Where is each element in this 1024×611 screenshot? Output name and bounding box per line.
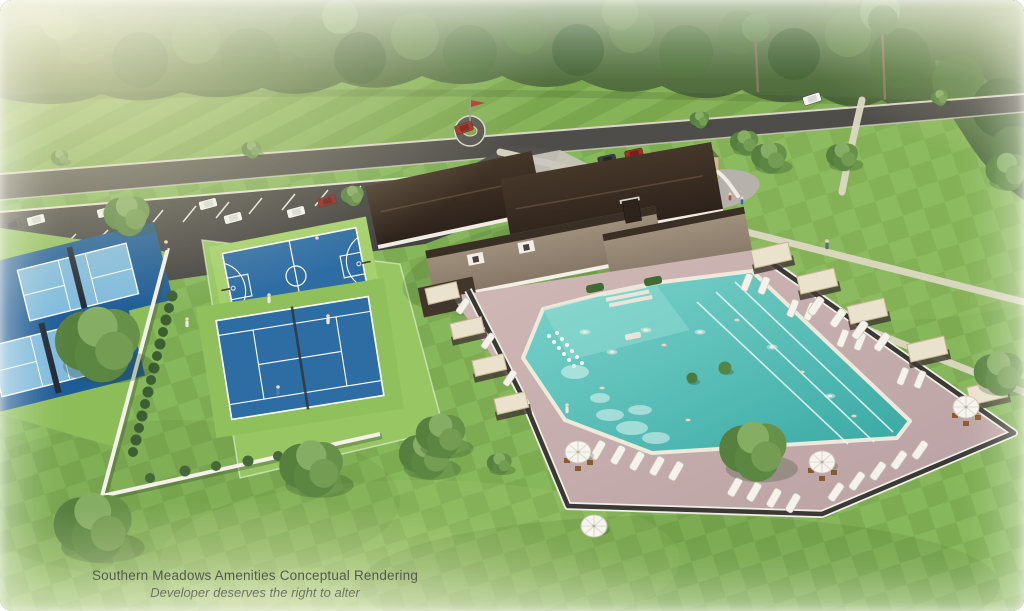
person bbox=[565, 403, 569, 413]
caption: Southern Meadows Amenities Conceptual Re… bbox=[55, 568, 455, 601]
person bbox=[825, 239, 829, 249]
person bbox=[729, 193, 732, 201]
tree bbox=[974, 352, 1024, 397]
tree bbox=[985, 153, 1024, 191]
person bbox=[276, 385, 280, 395]
person bbox=[315, 236, 319, 246]
caption-title: Southern Meadows Amenities Conceptual Re… bbox=[55, 568, 455, 585]
person bbox=[185, 317, 189, 327]
caption-disclaimer: Developer deserves the right to alter bbox=[55, 585, 455, 601]
person bbox=[267, 293, 271, 303]
person bbox=[164, 240, 168, 250]
rendering: Southern Meadows Amenities Conceptual Re… bbox=[0, 0, 1024, 611]
person bbox=[741, 197, 744, 205]
rendering-canvas bbox=[0, 0, 1024, 611]
person bbox=[326, 314, 330, 324]
